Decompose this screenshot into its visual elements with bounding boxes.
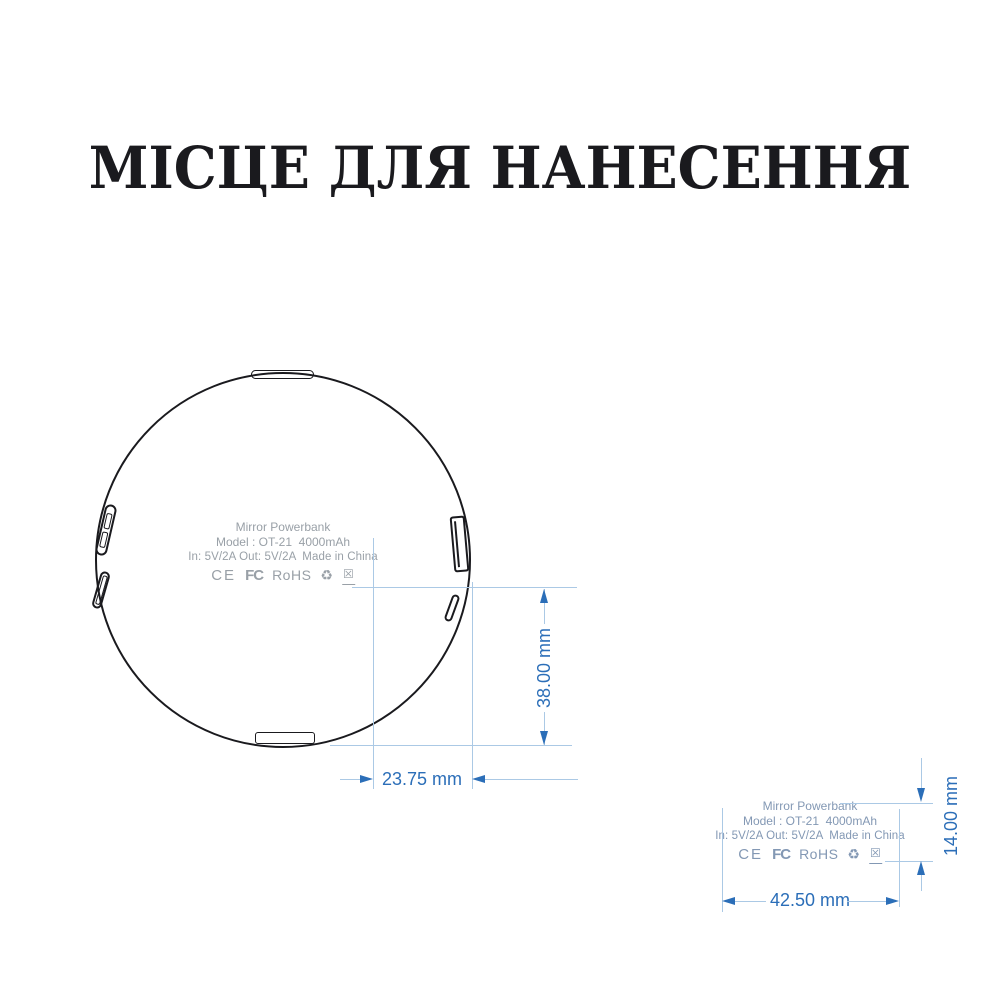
arrow-left-icon [722,897,735,905]
certification-row: CE FC RoHS ♻ ☒ [188,566,378,585]
port-inner-edge [454,521,460,567]
extension-line [373,538,374,789]
page-title: МІСЦЕ ДЛЯ НАНЕСЕННЯ [89,138,911,198]
recycle-icon: ♻ [847,846,860,863]
arrow-down-icon [917,788,925,802]
weee-bin-icon: ☒ [869,845,882,864]
arrow-left-icon [472,775,485,783]
extension-line [899,809,900,907]
fcc-mark-icon: FC [245,567,263,584]
dimension-line [921,875,922,891]
ce-mark-icon: CE [738,846,763,863]
rohs-mark: RoHS [799,846,838,863]
product-name: Mirror Powerbank [715,799,905,814]
led-window [103,512,112,529]
bottom-tab [255,732,315,744]
label-artwork-block: Mirror Powerbank Model : OT-21 4000mAh I… [715,799,905,864]
extension-line [352,587,577,588]
weee-bin-icon: ☒ [342,566,355,585]
led-window [99,531,108,548]
arrow-down-icon [540,731,548,745]
circle-product-label: Mirror Powerbank Model : OT-21 4000mAh I… [188,520,378,585]
extension-line [472,582,473,789]
dimension-line [340,779,362,780]
dim-label-height: 14.00 mm [940,772,962,860]
fcc-mark-icon: FC [772,846,790,863]
power-line: In: 5V/2A Out: 5V/2A Made in China [715,829,905,844]
dim-circle-print-width: 23.75 mm [378,768,466,790]
arrow-right-icon [886,897,899,905]
extension-line [330,745,572,746]
recycle-icon: ♻ [320,567,333,584]
dimension-line [847,901,886,902]
arrow-up-icon [540,589,548,603]
top-tab [251,370,314,379]
ce-mark-icon: CE [211,567,236,584]
rohs-mark: RoHS [272,567,311,584]
arrow-up-icon [917,861,925,875]
product-name: Mirror Powerbank [188,520,378,535]
certification-row: CE FC RoHS ♻ ☒ [715,845,905,864]
dimension-line [485,779,578,780]
dim-label-width: 42.50 mm [766,889,854,911]
extension-line [885,861,933,862]
power-line: In: 5V/2A Out: 5V/2A Made in China [188,550,378,565]
model-line: Model : OT-21 4000mAh [715,814,905,829]
extension-line [840,803,933,804]
model-line: Model : OT-21 4000mAh [188,535,378,550]
arrow-right-icon [360,775,373,783]
dim-circle-print-height: 38.00 mm [533,624,555,712]
